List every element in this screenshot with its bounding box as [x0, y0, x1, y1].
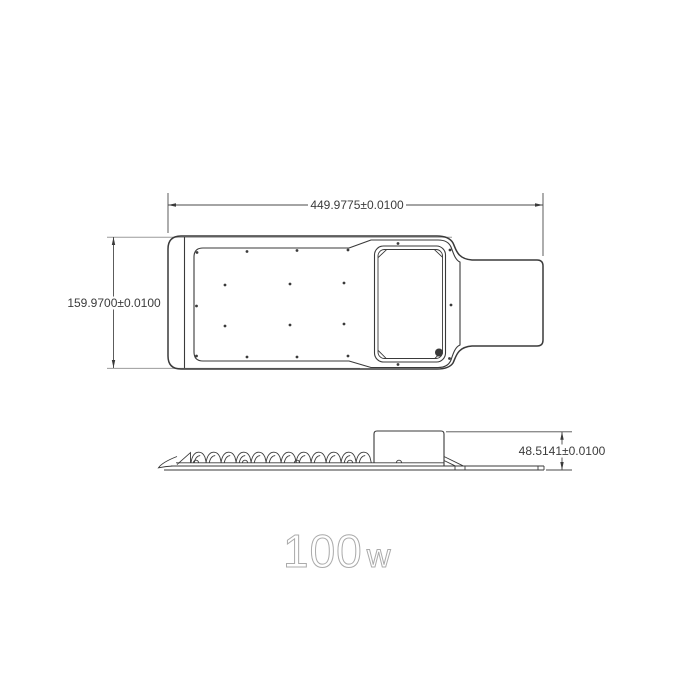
arrow-right-icon	[535, 203, 543, 206]
housing-outline	[168, 236, 543, 369]
driver-box-outer	[375, 246, 446, 362]
technical-drawing-page: 449.9775±0.0100 159.9700±0.0100	[0, 0, 680, 680]
arrow-up-icon	[112, 237, 115, 245]
arrow-down-icon	[112, 360, 115, 368]
width-dimension-label: 449.9775±0.0100	[310, 198, 404, 212]
side-view: 48.5141±0.0100	[159, 431, 610, 470]
arrow-up-icon	[560, 432, 563, 440]
driver-box-inner	[378, 250, 443, 359]
wattage-unit: w	[366, 537, 392, 574]
wattage-label: 100w	[283, 525, 392, 577]
led-panel-outline	[194, 240, 460, 368]
street-light-drawing: 449.9775±0.0100 159.9700±0.0100	[0, 0, 680, 680]
screw-holes	[195, 242, 452, 366]
driver-box-corner-bevels	[378, 250, 443, 359]
wattage-value: 100	[283, 525, 363, 577]
side-height-dimension-label: 48.5141±0.0100	[519, 444, 606, 458]
heat-sink-fins	[191, 452, 371, 463]
top-view: 449.9775±0.0100 159.9700±0.0100	[66, 193, 543, 369]
height-dimension: 159.9700±0.0100	[66, 237, 162, 368]
height-dimension-label: 159.9700±0.0100	[67, 296, 161, 310]
sensor-plug	[435, 349, 443, 357]
driver-box-profile	[374, 431, 444, 466]
arrow-left-icon	[168, 203, 176, 206]
arrow-down-icon	[560, 462, 563, 470]
side-height-dimension: 48.5141±0.0100	[446, 432, 609, 470]
width-dimension: 449.9775±0.0100	[168, 193, 543, 256]
driver-box-brace	[444, 457, 463, 466]
